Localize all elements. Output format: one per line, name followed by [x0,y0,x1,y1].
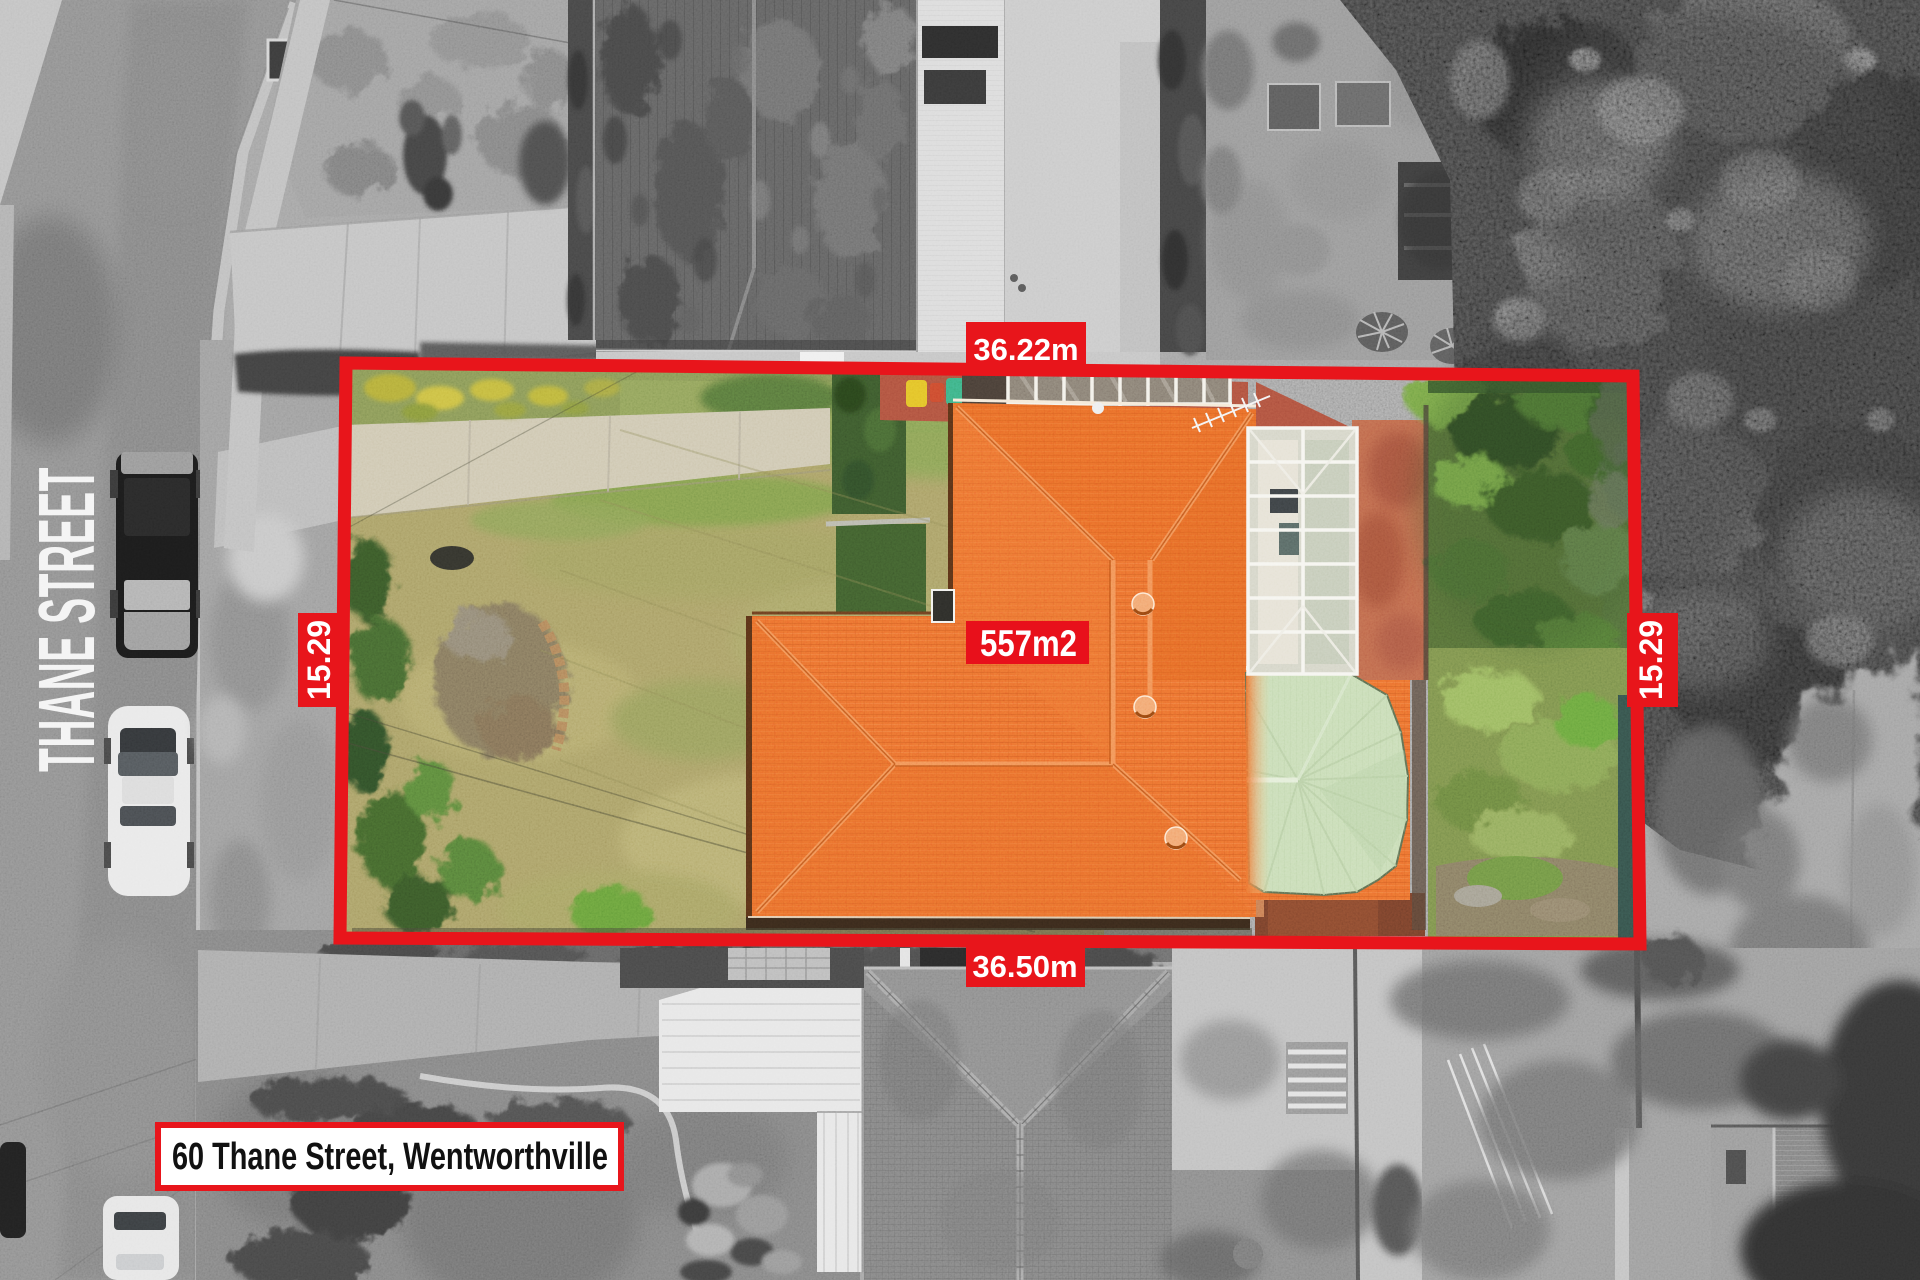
svg-text:557m2: 557m2 [980,623,1077,664]
svg-text:36.22m: 36.22m [973,332,1078,367]
svg-text:36.50m: 36.50m [972,949,1077,984]
svg-text:60 Thane Street, Wentworthvill: 60 Thane Street, Wentworthville [172,1136,608,1178]
svg-text:15.29: 15.29 [301,620,337,700]
svg-text:15.29: 15.29 [1633,620,1669,700]
